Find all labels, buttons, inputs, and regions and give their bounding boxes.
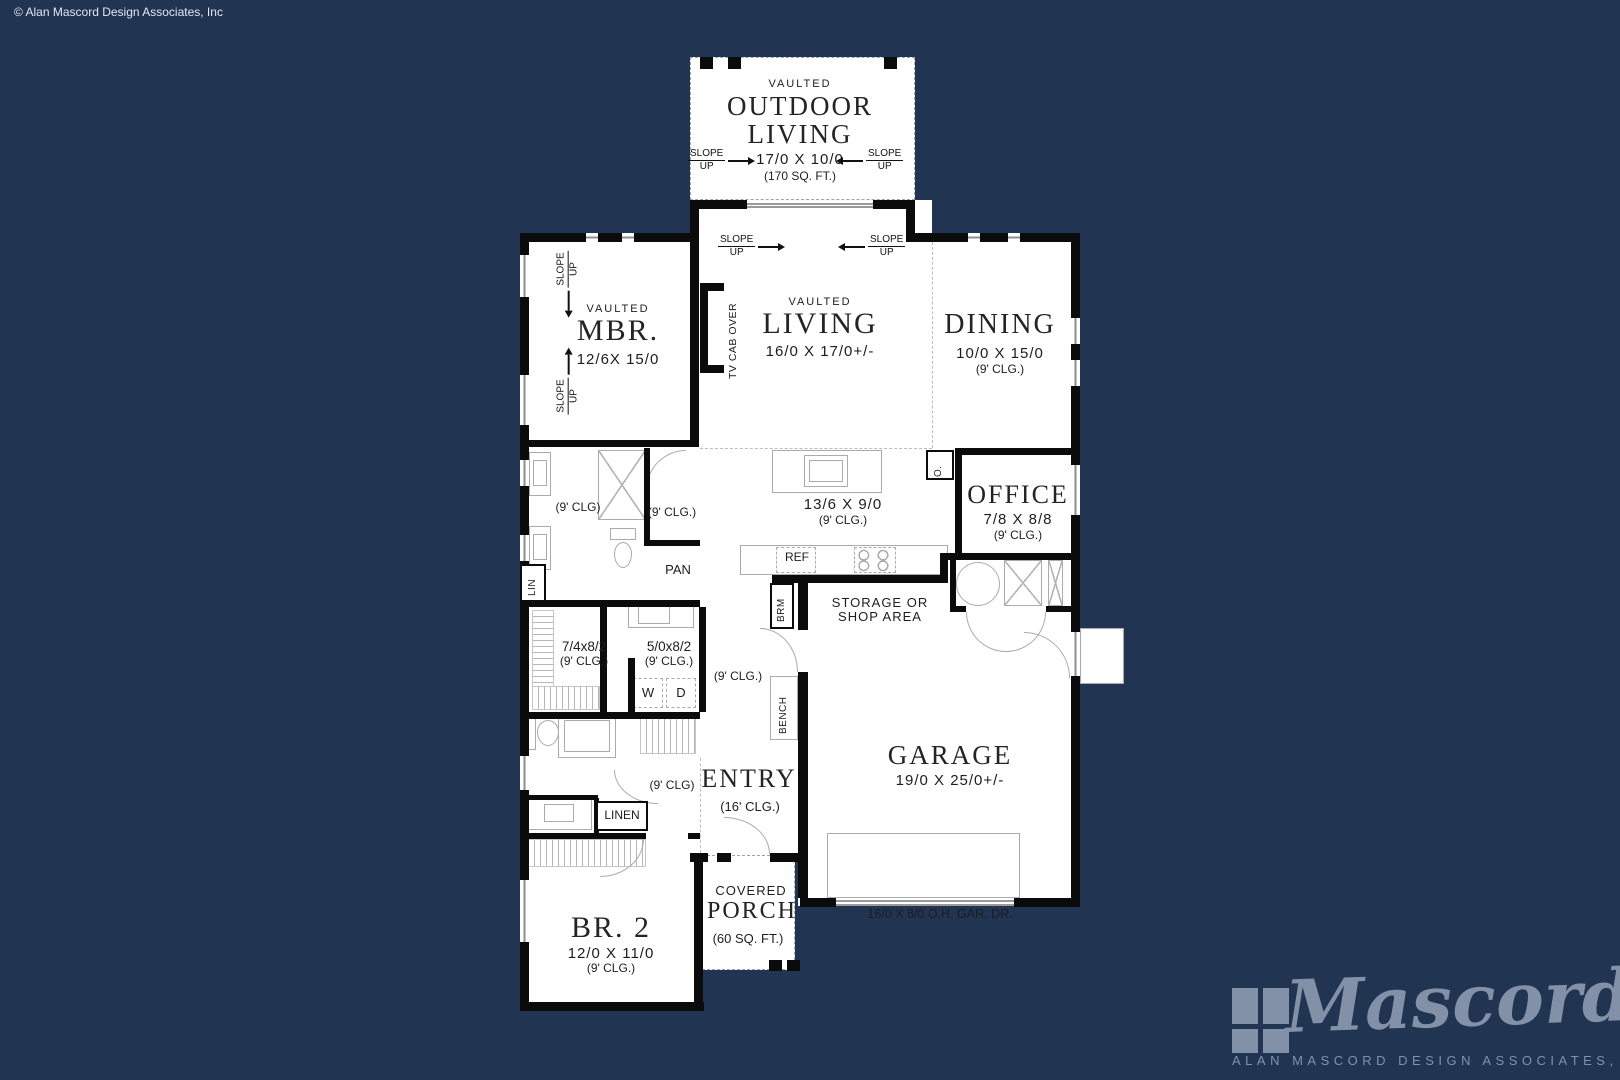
br2-title: BR. 2	[571, 912, 651, 944]
water-heater	[956, 562, 1000, 606]
closet-dims: 7/4x8/2	[562, 640, 606, 654]
kitchen-ceiling: (9' CLG.)	[819, 514, 867, 527]
wall	[520, 600, 700, 607]
dryer-label: D	[676, 686, 685, 700]
outdoor-living-area: (170 SQ. FT.)	[764, 170, 836, 183]
linen-label: LIN	[527, 570, 538, 596]
wall	[628, 658, 635, 712]
entry-title: ENTRY	[701, 765, 796, 792]
wall	[798, 672, 808, 898]
wall	[520, 233, 698, 242]
wall	[520, 440, 697, 447]
wall	[644, 448, 650, 546]
storage-label2: SHOP AREA	[838, 610, 922, 624]
utility-cabinet	[1048, 560, 1063, 606]
storage-label: STORAGE OR	[832, 596, 928, 610]
dining-ceiling: (9' CLG.)	[976, 363, 1024, 376]
living-dims: 16/0 X 17/0+/-	[766, 344, 875, 360]
utility-dims: 5/0x8/2	[647, 640, 691, 654]
porch-area: (60 SQ. FT.)	[713, 932, 784, 946]
window	[520, 460, 529, 486]
utility-ceiling: (9' CLG.)	[645, 655, 693, 668]
wall	[955, 448, 962, 560]
window	[1008, 233, 1020, 242]
wall	[1046, 606, 1071, 612]
slope-up-label: SLOPEUP	[556, 250, 581, 310]
living-dining-divider	[932, 242, 933, 448]
wall	[906, 200, 915, 242]
window	[520, 880, 529, 942]
closet-rod	[640, 718, 696, 754]
window-pane-icon	[1232, 1029, 1258, 1053]
slope-up-label: SLOPEUP	[718, 234, 778, 259]
toilet-tank	[610, 528, 636, 540]
slope-up-arrow-icon	[845, 246, 865, 248]
kitchen-counter	[740, 545, 948, 575]
office-title: OFFICE	[967, 481, 1069, 508]
slope-up-arrow-icon	[568, 354, 570, 374]
living-kitchen-divider	[700, 448, 932, 449]
bathtub-inner	[564, 720, 610, 752]
hall-ceiling: (9' CLG.)	[648, 506, 696, 519]
wall	[690, 853, 708, 862]
copyright-text: © Alan Mascord Design Associates, Inc	[14, 5, 223, 19]
window	[520, 255, 529, 297]
garage-title: GARAGE	[888, 741, 1013, 769]
window	[968, 233, 980, 242]
window	[1071, 465, 1080, 515]
tv-niche-wall	[700, 283, 708, 373]
laundry-sink	[638, 604, 670, 624]
entry-ceiling: (16' CLG.)	[720, 800, 780, 814]
sliding-door	[747, 203, 873, 205]
linen-closet-label: LINEN	[604, 809, 639, 822]
wall	[950, 560, 956, 610]
window	[520, 375, 529, 425]
outdoor-living-dims: 17/0 X 10/0	[756, 152, 844, 168]
slope-up-label: SLOPEUP	[845, 234, 905, 259]
porch-post	[769, 960, 782, 971]
slope-up-label: SLOPEUP	[556, 354, 581, 414]
slope-up-arrow-icon	[758, 246, 778, 248]
wall	[520, 833, 646, 839]
slope-up-arrow-icon	[728, 160, 748, 162]
dining-dims: 10/0 X 15/0	[956, 346, 1044, 362]
washer-label: W	[642, 686, 654, 700]
garage-door-line	[836, 904, 1014, 906]
closet-ceiling: (9' CLG.)	[560, 655, 608, 668]
tv-cab-over-label: TV CAB OVER	[727, 283, 739, 379]
br2-ceiling: (9' CLG.)	[587, 962, 635, 975]
outdoor-living-vaulted: VAULTED	[768, 79, 831, 91]
wall	[520, 712, 700, 719]
closet-rod	[532, 686, 600, 710]
logo-subtitle: ALAN MASCORD DESIGN ASSOCIATES, INC.	[1232, 1053, 1620, 1068]
outdoor-living-title: OUTDOOR LIVING	[703, 92, 898, 149]
slope-up-arrow-icon	[843, 160, 863, 162]
bath-ceiling: (9' CLG)	[556, 501, 601, 514]
logo-script-text: Mascord	[1284, 952, 1620, 1049]
wall	[770, 853, 800, 862]
porch-post	[787, 960, 800, 971]
exterior-stoop	[1080, 628, 1124, 684]
wall	[948, 553, 1080, 560]
window	[520, 756, 529, 790]
wall	[955, 448, 1080, 455]
br2-dims: 12/0 X 11/0	[568, 946, 655, 962]
porch-label-line1: COVERED	[715, 884, 786, 898]
wall	[644, 540, 700, 546]
slope-up-label: SLOPEUP	[843, 148, 903, 173]
mbr-title: MBR.	[577, 315, 659, 347]
window	[520, 535, 529, 561]
floorplan-page: © Alan Mascord Design Associates, Inc	[0, 0, 1620, 1080]
range-cooktop	[854, 547, 896, 573]
wall	[699, 607, 706, 712]
slope-up-arrow-icon	[568, 291, 570, 311]
broom-label: BRM	[776, 590, 787, 622]
furnace	[1004, 560, 1042, 606]
kitchen-sink-basin	[809, 460, 843, 482]
pantry-label: PAN	[665, 563, 691, 577]
dining-title: DINING	[944, 310, 1056, 339]
wall	[798, 583, 808, 630]
porch-post	[700, 57, 713, 69]
bath-sink	[533, 534, 547, 560]
wall	[694, 853, 703, 1010]
entry-hall-ceiling: (9' CLG)	[650, 779, 695, 792]
slope-up-label: SLOPEUP	[688, 148, 748, 173]
window-pane-icon	[1232, 988, 1258, 1024]
garage-door-clearance	[827, 833, 1020, 898]
garage-door-label: 16/0 X 8/0 O.H. GAR. DR.	[867, 908, 1012, 921]
window	[1071, 360, 1080, 386]
wall	[520, 795, 598, 800]
wall	[1014, 898, 1080, 907]
office-dims: 7/8 X 8/8	[983, 512, 1052, 528]
living-title: LIVING	[762, 308, 877, 340]
wall	[688, 833, 700, 839]
bench-label: BENCH	[778, 684, 789, 734]
oven-label: O.	[933, 455, 944, 477]
garage-dims: 19/0 X 25/0+/-	[896, 773, 1005, 789]
tv-niche-wall	[700, 365, 724, 373]
window	[1071, 318, 1080, 344]
mbr-dims: 12/6X 15/0	[577, 352, 660, 368]
porch-title: PORCH	[707, 899, 797, 924]
window	[622, 233, 634, 242]
tv-niche-wall	[700, 283, 724, 291]
office-ceiling: (9' CLG.)	[994, 529, 1042, 542]
bath-sink	[544, 804, 574, 822]
window	[586, 233, 598, 242]
wall	[800, 898, 836, 907]
shower	[598, 450, 646, 520]
wall	[906, 233, 1080, 242]
refrigerator-label: REF	[785, 551, 809, 564]
wall	[772, 575, 948, 583]
garage-door-line	[836, 900, 1014, 902]
wall	[950, 606, 966, 612]
wall	[690, 200, 699, 447]
porch-post	[884, 57, 897, 69]
side-door-opening	[1071, 632, 1080, 676]
wall	[520, 1002, 704, 1011]
sliding-door	[747, 206, 873, 208]
kitchen-dims: 13/6 X 9/0	[804, 497, 882, 513]
porch-post	[728, 57, 741, 69]
wall	[1071, 560, 1080, 906]
bath-sink	[533, 460, 547, 486]
hallway-ceiling: (9' CLG.)	[714, 670, 762, 683]
wall	[717, 853, 731, 862]
